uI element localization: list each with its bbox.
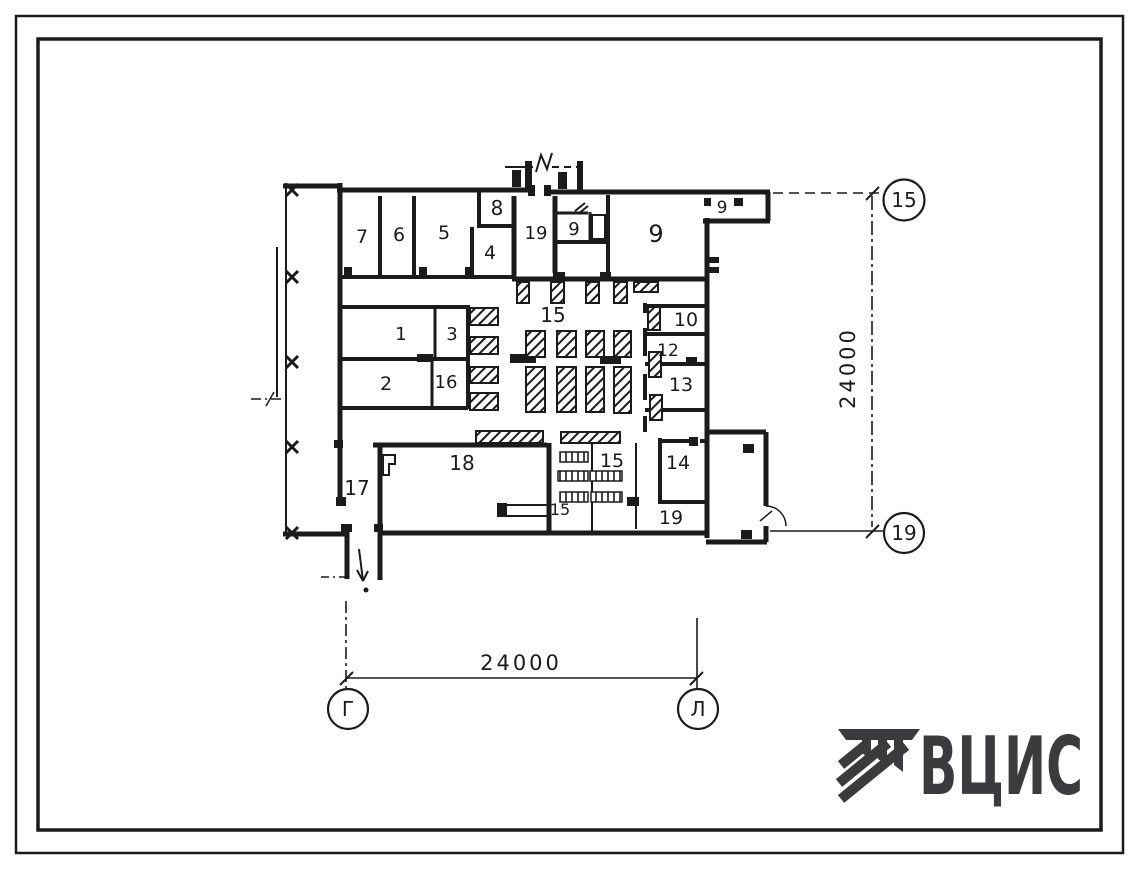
room-label-15-lower: 15 — [600, 450, 624, 472]
vcis-emblem-icon — [838, 729, 920, 799]
column-marks — [286, 184, 298, 539]
room-label-19-top: 19 — [525, 223, 548, 244]
break-line-icon — [536, 153, 552, 172]
room-label-15-small: 15 — [550, 500, 570, 519]
wall-step — [383, 455, 395, 475]
equipment-hatched — [470, 282, 662, 443]
axis-label-19: 19 — [891, 521, 916, 545]
room-label-19-bottom: 19 — [659, 507, 683, 529]
axis-label-g: Г — [342, 697, 354, 721]
vcis-logo: ВЦИС — [838, 720, 1083, 813]
room-label-9-large: 9 — [648, 220, 663, 248]
room-label-8: 8 — [491, 196, 504, 220]
room-label-14: 14 — [666, 452, 690, 474]
room-label-3: 3 — [446, 324, 457, 345]
wall-break-icon — [251, 392, 289, 406]
room-label-6: 6 — [393, 224, 405, 246]
shaft — [592, 215, 605, 239]
room-label-15-hall: 15 — [540, 303, 565, 327]
room-label-5: 5 — [438, 222, 450, 244]
room-label-2: 2 — [380, 373, 392, 395]
blueprint-canvas: 7 6 5 8 4 19 9 9 9 1 3 2 16 15 10 12 13 … — [0, 0, 1139, 869]
room-label-9-annex: 9 — [717, 198, 728, 218]
room-label-16: 16 — [435, 372, 458, 393]
dim-value-bottom: 24000 — [480, 651, 562, 675]
room-label-9-small: 9 — [568, 219, 579, 240]
room-label-13: 13 — [669, 374, 693, 396]
drawing-sheet: { "sheet": { "background": "#ffffff", "i… — [0, 0, 1139, 869]
room-label-18: 18 — [449, 451, 474, 475]
room-label-12: 12 — [657, 341, 679, 361]
platform — [502, 505, 548, 516]
room-label-7: 7 — [356, 226, 368, 248]
room-label-10: 10 — [674, 309, 698, 331]
dimension-right: 24000 15 19 — [770, 180, 925, 554]
room-label-1: 1 — [395, 324, 406, 345]
exit-door-swing-icon — [760, 506, 786, 526]
axis-label-15: 15 — [891, 188, 916, 212]
room-label-17: 17 — [344, 476, 369, 500]
floor-plan: 7 6 5 8 4 19 9 9 9 1 3 2 16 15 10 12 13 … — [251, 153, 786, 593]
axis-label-l: Л — [690, 697, 705, 721]
room-label-4: 4 — [484, 242, 496, 264]
vcis-logo-text: ВЦИС — [919, 720, 1083, 813]
dimension-bottom: 24000 Г Л — [328, 601, 718, 729]
dim-value-right: 24000 — [836, 327, 860, 409]
